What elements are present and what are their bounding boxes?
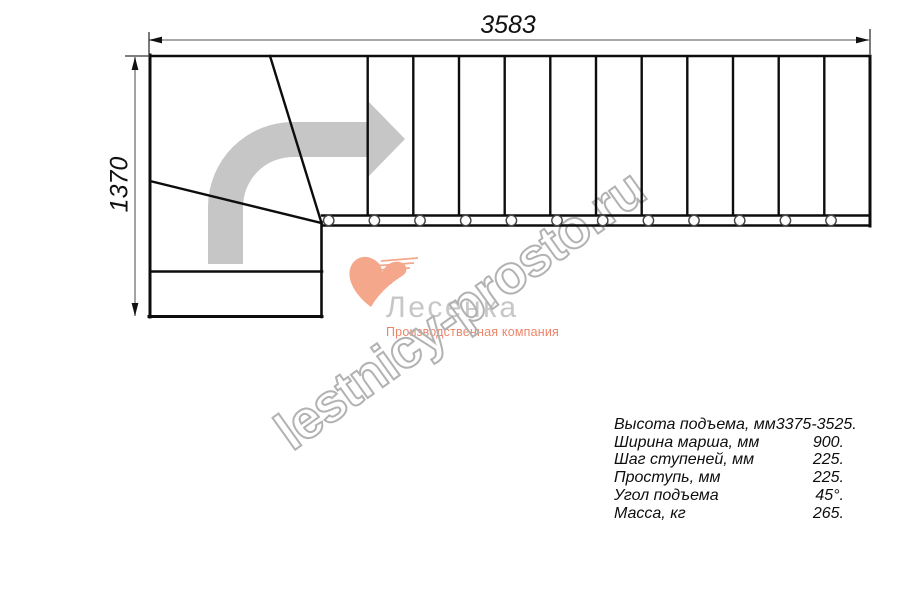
- spec-row-mass: Масса, кг 265.: [614, 505, 844, 523]
- spec-value: 45°.: [815, 487, 844, 505]
- spec-row-flight-width: Ширина марша, мм 900.: [614, 434, 844, 452]
- dimension-label-depth: 1370: [106, 125, 131, 245]
- direction-arrow-icon: [208, 101, 405, 264]
- staircase-outline: [149, 55, 870, 317]
- spec-value: 225.: [813, 469, 844, 487]
- spec-row-angle: Угол подъема 45°.: [614, 487, 844, 505]
- spec-label: Проступь, мм: [614, 469, 720, 487]
- spec-value: 3375-3525.: [776, 416, 857, 434]
- tread-lines: [368, 56, 825, 216]
- dimension-label-width: 3583: [448, 11, 568, 40]
- spec-value: 225.: [813, 451, 844, 469]
- spec-label: Ширина марша, мм: [614, 434, 759, 452]
- spec-label: Угол подъема: [614, 487, 719, 505]
- spec-label: Масса, кг: [614, 505, 686, 523]
- spec-value: 900.: [813, 434, 844, 452]
- stringer-bolts: [324, 215, 837, 225]
- spec-label: Высота подъема, мм: [614, 416, 776, 434]
- spec-row-height: Высота подъема, мм 3375-3525.: [614, 416, 844, 434]
- spec-row-step-pitch: Шаг ступеней, мм 225.: [614, 451, 844, 469]
- spec-value: 265.: [813, 505, 844, 523]
- spec-row-tread: Проступь, мм 225.: [614, 469, 844, 487]
- spec-label: Шаг ступеней, мм: [614, 451, 754, 469]
- spec-table: Высота подъема, мм 3375-3525. Ширина мар…: [614, 416, 844, 522]
